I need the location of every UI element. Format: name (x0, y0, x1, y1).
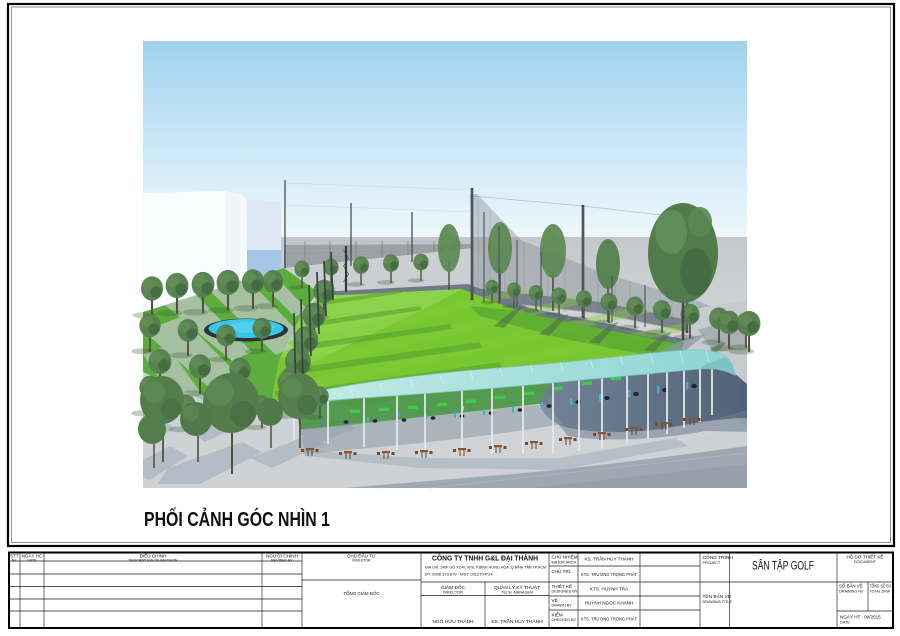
svg-text:TECH. MANAGER: TECH. MANAGER (501, 591, 533, 595)
svg-text:KTS. TRƯƠNG TRỌNG PHÁT: KTS. TRƯƠNG TRỌNG PHÁT (581, 571, 637, 577)
svg-text:ĐT: 0938 370 679 - MST: 031270: ĐT: 0938 370 679 - MST: 0312704724 (425, 572, 493, 577)
svg-text:CÔNG TRÌNH: CÔNG TRÌNH (703, 554, 734, 561)
svg-text:SÂN TẬP GOLF: SÂN TẬP GOLF (752, 560, 814, 573)
svg-text:THIẾT KẾ: THIẾT KẾ (552, 583, 573, 589)
svg-text:DRAWN BY: DRAWN BY (552, 604, 573, 608)
svg-text:TỔNG SỐ BV: TỔNG SỐ BV (870, 584, 892, 589)
svg-text:HỒ SƠ THIẾT KẾ: HỒ SƠ THIẾT KẾ (847, 554, 884, 560)
svg-text:TOTAL DRW: TOTAL DRW (870, 590, 891, 594)
svg-text:DIRECTOR: DIRECTOR (443, 591, 463, 595)
svg-text:KTS. TRƯƠNG TRỌNG PHÁT: KTS. TRƯƠNG TRỌNG PHÁT (581, 616, 637, 622)
svg-text:DESCRIPTION OF REVISION: DESCRIPTION OF REVISION (129, 559, 178, 563)
svg-text:KS. TRẦN HUY THÀNH: KS. TRẦN HUY THÀNH (584, 556, 633, 562)
svg-text:NGÀY HT : 09/2015: NGÀY HT : 09/2015 (840, 614, 881, 620)
svg-text:NGÔ HỮU THÀNH: NGÔ HỮU THÀNH (432, 618, 474, 625)
svg-text:DESIGNED BY: DESIGNED BY (552, 590, 578, 594)
svg-text:DRAWING TITLE: DRAWING TITLE (703, 600, 733, 604)
svg-text:No.: No. (12, 559, 18, 563)
svg-text:DATE: DATE (840, 621, 850, 625)
svg-text:SỐ BẢN VẼ: SỐ BẢN VẼ (839, 584, 863, 589)
svg-text:ĐỊA CHỈ: 140F GÒ XOÀI, KP8, P.: ĐỊA CHỈ: 140F GÒ XOÀI, KP8, P.BÌNH HƯNG … (425, 565, 546, 570)
svg-text:VẼ: VẼ (552, 597, 558, 603)
svg-text:MAJOR ARCH: MAJOR ARCH (552, 561, 577, 565)
svg-text:CHỦ NHIỆM: CHỦ NHIỆM (552, 553, 578, 560)
svg-text:PHỐI CẢNH GÓC NHÌN 1: PHỐI CẢNH GÓC NHÌN 1 (144, 507, 330, 531)
svg-text:DRAWING No: DRAWING No (839, 590, 863, 594)
svg-text:CHỦ TRÌ: CHỦ TRÌ (552, 568, 571, 574)
svg-text:DOCUMENT: DOCUMENT (854, 560, 877, 564)
svg-text:REVISED BY: REVISED BY (271, 559, 293, 563)
svg-text:KS. TRẦN HUY THÀNH: KS. TRẦN HUY THÀNH (491, 618, 543, 625)
svg-text:KIỂM: KIỂM (552, 612, 563, 618)
svg-text:CHECKED BY: CHECKED BY (552, 618, 577, 622)
svg-text:KTS. HUỲNH TRÀ: KTS. HUỲNH TRÀ (590, 586, 629, 592)
svg-text:PROJECT: PROJECT (703, 561, 721, 565)
svg-text:DATE: DATE (27, 559, 37, 563)
svg-text:HUỲNH NGỌC KHANH: HUỲNH NGỌC KHANH (585, 600, 634, 606)
svg-text:INVESTOR: INVESTOR (352, 559, 371, 563)
svg-text:TỔNG GIÁM ĐỐC: TỔNG GIÁM ĐỐC (343, 591, 379, 596)
svg-text:CÔNG TY TNHH G&L ĐẠI THÀNH: CÔNG TY TNHH G&L ĐẠI THÀNH (432, 554, 538, 563)
